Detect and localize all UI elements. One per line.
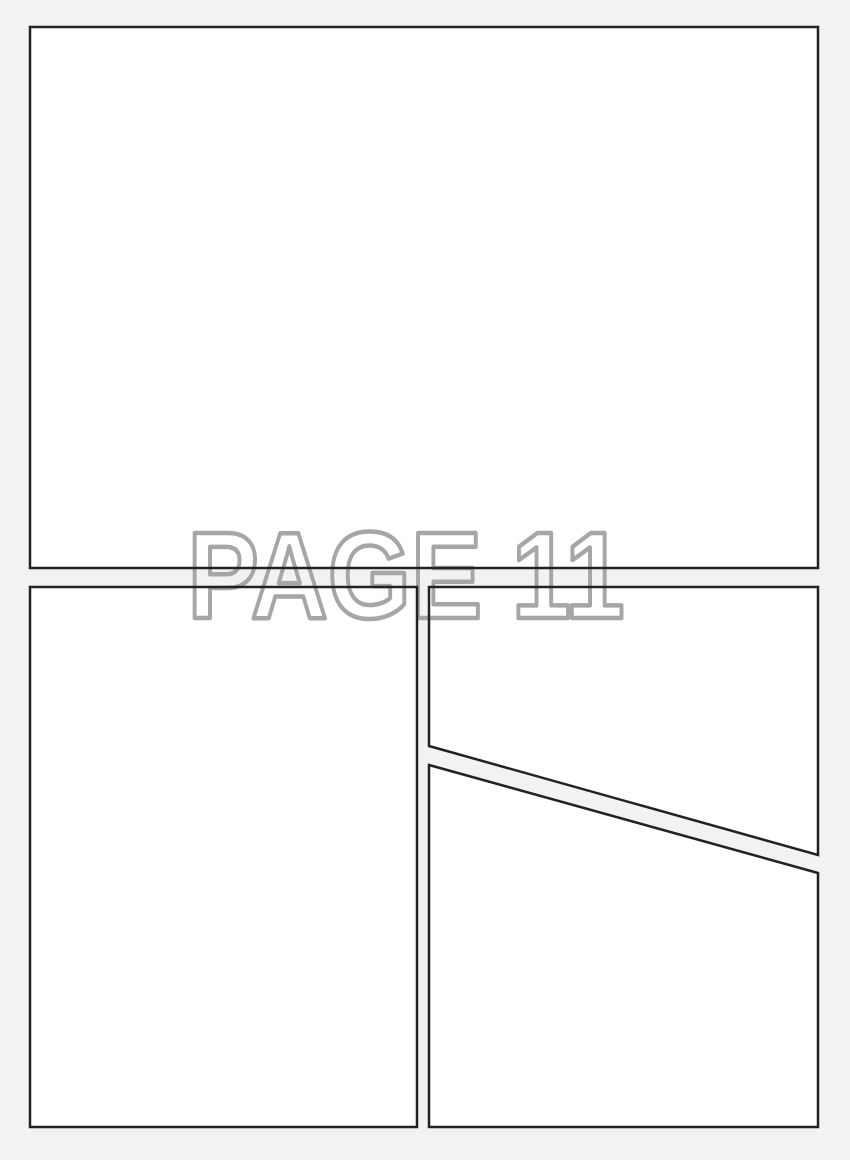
- page-canvas: PAGE 11: [0, 0, 850, 1160]
- panel-1-fill: [30, 27, 818, 568]
- panel-2-fill: [30, 587, 417, 1127]
- page-number-watermark: PAGE 11: [188, 508, 625, 645]
- comic-page-template: PAGE 11: [0, 0, 850, 1160]
